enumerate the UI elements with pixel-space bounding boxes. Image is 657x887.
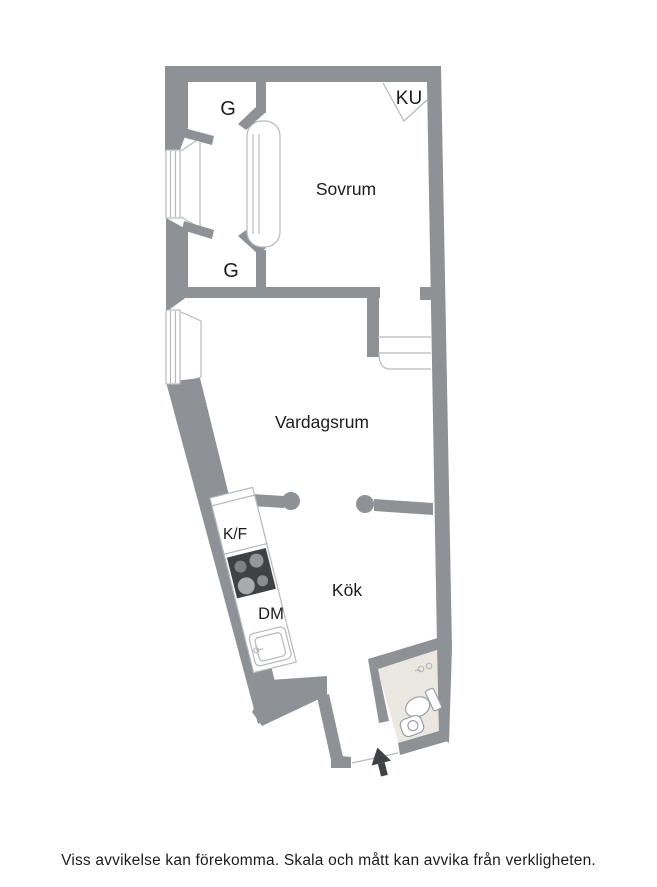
- entrance-arrow: [368, 745, 394, 778]
- wall-kitchen-divider-right: [374, 499, 433, 515]
- label-kitchen: Kök: [332, 580, 362, 600]
- wall-left-upper: [165, 66, 188, 151]
- arrow-shaft: [378, 762, 388, 776]
- wall-window1-stub-top: [182, 128, 214, 145]
- disclaimer-text: Viss avvikelse kan förekomma. Skala och …: [0, 852, 657, 870]
- label-dishwasher: DM: [258, 605, 284, 623]
- pillar-left: [282, 492, 300, 510]
- sliding-door-outline: [247, 121, 280, 247]
- pillar-right: [356, 495, 374, 513]
- label-closet-top: G: [220, 98, 236, 120]
- wall-divider-right-stub: [420, 287, 431, 300]
- window-livingroom: [166, 310, 180, 384]
- label-bedroom: Sovrum: [316, 179, 376, 199]
- wall-entry-foot: [331, 755, 351, 768]
- wall-hall-stub: [367, 298, 379, 357]
- radiator-lines: [378, 337, 431, 369]
- label-fridge-freezer: K/F: [223, 526, 247, 543]
- wall-bedroom-divider: [186, 287, 380, 298]
- window-frame: [166, 150, 180, 218]
- window-alcove-bedroom: [181, 138, 200, 228]
- closet-sliding-door: [247, 121, 280, 247]
- wall-closet-partition-bottom: [256, 250, 266, 290]
- window-frame: [166, 310, 180, 384]
- window-alcove-livingroom: [181, 312, 201, 384]
- label-closet-bottom: G: [223, 260, 239, 282]
- label-corner-stove: KU: [396, 88, 422, 109]
- floorplan-page: { "figure": { "type": "apartment-floorpl…: [0, 0, 657, 882]
- label-livingroom: Vardagsrum: [275, 412, 369, 432]
- wall-top: [165, 66, 441, 82]
- wall-left-middle: [166, 218, 188, 312]
- radiator: [378, 337, 431, 369]
- wall-entry-left: [317, 694, 343, 760]
- window-bedroom: [166, 150, 180, 218]
- floorplan-canvas: G KU Sovrum G Vardagsrum K/F Kök DM: [0, 0, 657, 882]
